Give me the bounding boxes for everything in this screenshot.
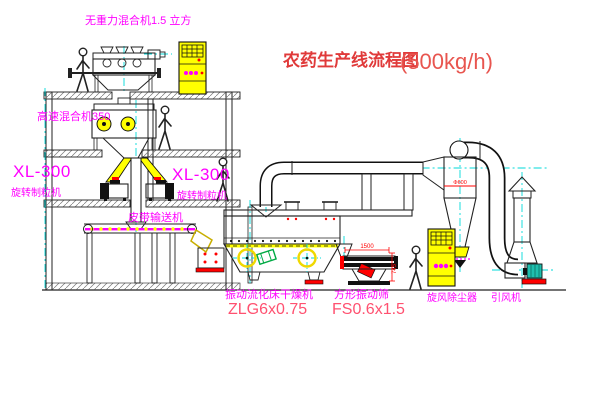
label-granulator-right-name: 旋转制粒机 bbox=[177, 189, 227, 202]
label-fan: 引风机 bbox=[491, 291, 521, 304]
diagram-title-capacity: (500kg/h) bbox=[400, 49, 493, 74]
sieve-width-dim: 1500 bbox=[360, 244, 374, 250]
label-granulator-right-model: XL-300 bbox=[172, 165, 230, 184]
dryer-feed-chute bbox=[191, 230, 224, 272]
operator-figure-4 bbox=[410, 246, 422, 289]
granulator-right bbox=[146, 177, 174, 201]
vibrating-sieve: 1500 745 bbox=[340, 244, 398, 285]
label-sieve-model: FS0.6x1.5 bbox=[332, 301, 405, 318]
cyclone-to-fan-duct bbox=[462, 141, 518, 267]
motor-box bbox=[257, 249, 276, 264]
belt-conveyor bbox=[84, 224, 197, 283]
indicator-dot bbox=[198, 59, 201, 62]
label-belt-conveyor: 皮带输送机 bbox=[128, 210, 183, 224]
operator-figure-1 bbox=[77, 48, 89, 91]
label-dryer-model: ZLG6x0.75 bbox=[228, 301, 307, 318]
control-cabinet-1 bbox=[179, 42, 206, 94]
cyclone-dia-dim: Φ600 bbox=[453, 180, 467, 186]
high-speed-mixer bbox=[92, 98, 156, 158]
label-granulator-left-model: XL-300 bbox=[13, 162, 71, 181]
label-sieve-name: 方形振动筛 bbox=[334, 287, 389, 301]
granulator-left bbox=[100, 177, 128, 201]
label-granulator-left-name: 旋转制粒机 bbox=[11, 186, 61, 199]
vibration-motor-symbol bbox=[293, 244, 321, 272]
diagram-title: 农药生产线流程图 bbox=[282, 50, 419, 70]
label-high-speed-mixer: 高速混合机350 bbox=[37, 109, 110, 123]
label-dryer-name: 振动流化床干燥机 bbox=[225, 287, 313, 301]
sieve-height-dim: 745 bbox=[392, 263, 398, 274]
operator-figure-2 bbox=[159, 106, 171, 149]
indicator-dot bbox=[449, 247, 452, 250]
control-cabinet-2 bbox=[428, 229, 455, 286]
pesticide-line-diagram: 1500 745 Φ600 bbox=[0, 0, 600, 403]
exhaust-duct bbox=[251, 161, 423, 217]
label-cyclone: 旋风除尘器 bbox=[427, 291, 477, 304]
flow-diagram-canvas: 1500 745 Φ600 bbox=[0, 0, 600, 403]
label-gravity-free-mixer: 无重力混合机1.5 立方 bbox=[85, 13, 191, 27]
fan-motor bbox=[527, 264, 542, 278]
